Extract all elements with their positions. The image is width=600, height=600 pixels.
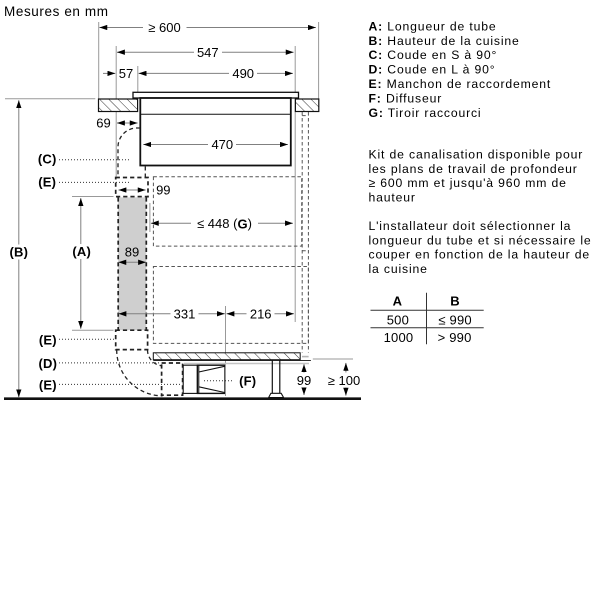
svg-text:99: 99 [297, 373, 311, 388]
svg-text:les plans de travail de profon: les plans de travail de profondeur [369, 162, 578, 176]
svg-text:couper en fonction de la haute: couper en fonction de la hauteur de [369, 248, 591, 262]
svg-text:(A): (A) [72, 244, 91, 259]
svg-text:(C): (C) [38, 152, 57, 167]
svg-text:(D): (D) [38, 356, 57, 371]
svg-text:≥ 600: ≥ 600 [148, 20, 180, 35]
svg-text:≤ 990: ≤ 990 [438, 312, 471, 327]
svg-text:547: 547 [197, 45, 219, 60]
svg-text:69: 69 [96, 116, 110, 131]
svg-text:F: Diffuseur: F: Diffuseur [369, 91, 443, 105]
svg-text:≥ 100: ≥ 100 [328, 373, 360, 388]
svg-text:hauteur: hauteur [369, 190, 416, 204]
svg-text:1000: 1000 [384, 330, 414, 345]
svg-text:89: 89 [125, 244, 139, 259]
svg-text:99: 99 [156, 183, 170, 198]
svg-text:A: Longueur de tube: A: Longueur de tube [369, 19, 497, 33]
svg-text:C: Coude en S à 90°: C: Coude en S à 90° [369, 48, 498, 62]
svg-text:B: Hauteur de la cuisine: B: Hauteur de la cuisine [369, 34, 520, 48]
svg-text:la cuisine: la cuisine [369, 262, 428, 276]
svg-text:≥ 600 mm et jusqu'à 960 mm de: ≥ 600 mm et jusqu'à 960 mm de [369, 176, 567, 190]
svg-text:490: 490 [232, 66, 254, 81]
svg-text:B: B [450, 294, 460, 309]
svg-text:longueur du tube et si nécessa: longueur du tube et si nécessaire le [369, 233, 592, 247]
svg-text:(E): (E) [39, 333, 57, 348]
svg-text:57: 57 [119, 66, 133, 81]
svg-text:(F): (F) [239, 373, 256, 388]
svg-text:> 990: > 990 [438, 330, 472, 345]
svg-text:A: A [393, 294, 403, 309]
svg-text:500: 500 [387, 312, 409, 327]
svg-text:Mesures en mm: Mesures en mm [4, 4, 109, 19]
svg-text:331: 331 [174, 306, 196, 321]
svg-text:D: Coude en L à 90°: D: Coude en L à 90° [369, 63, 496, 77]
svg-text:(E): (E) [38, 175, 56, 190]
svg-text:G: Tiroir raccourci: G: Tiroir raccourci [369, 106, 482, 120]
svg-text:Kit de canalisation disponible: Kit de canalisation disponible pour [369, 148, 584, 162]
svg-text:E: Manchon de raccordement: E: Manchon de raccordement [369, 77, 552, 91]
svg-text:(E): (E) [39, 378, 57, 393]
svg-text:(B): (B) [9, 245, 28, 260]
svg-text:470: 470 [211, 137, 233, 152]
svg-text:L'installateur doit sélectionn: L'installateur doit sélectionner la [369, 219, 572, 233]
svg-text:216: 216 [250, 306, 272, 321]
svg-text:≤ 448 (G): ≤ 448 (G) [197, 216, 252, 231]
